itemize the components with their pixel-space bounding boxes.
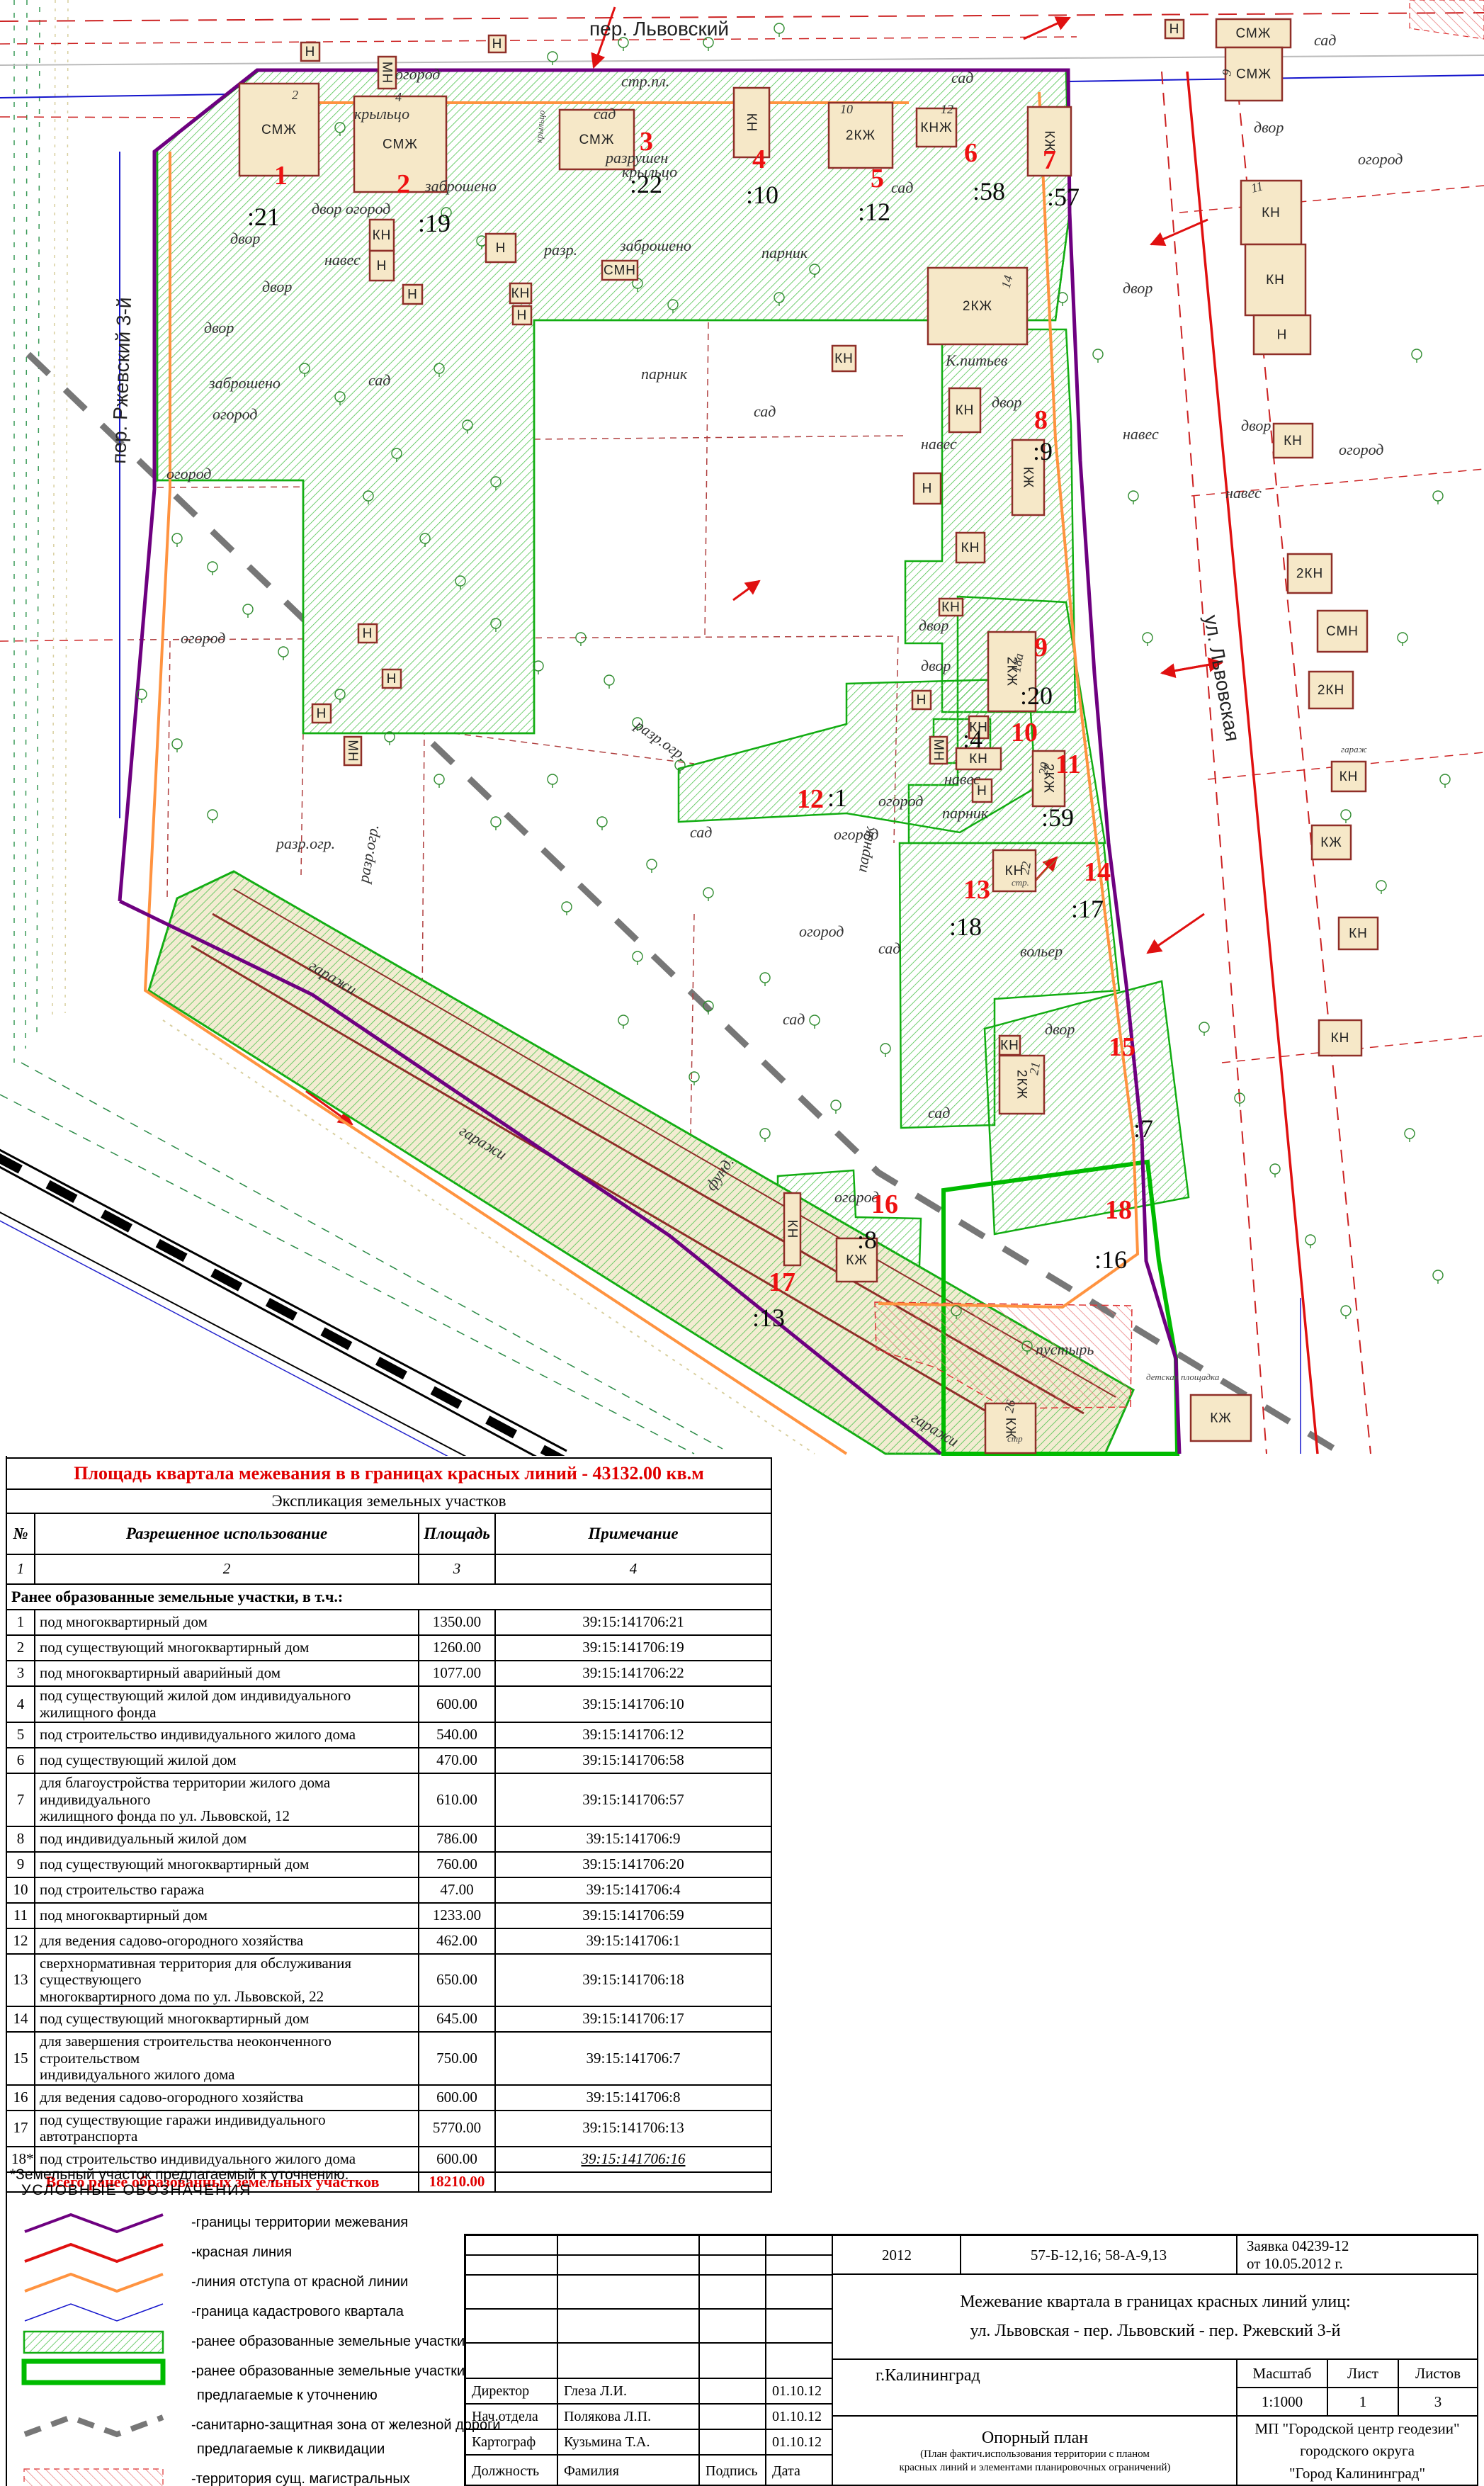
table-row: 1под многоквартирный дом1350.0039:15:141… [6,1610,771,1635]
stamp-empty-cell [557,2343,699,2378]
cell-num: 14 [6,2006,35,2032]
map-label: К.питьев [945,351,1008,369]
colnum-3: 3 [419,1554,495,1584]
cadastral-number: :1 [827,784,847,812]
map-label: двор [921,657,951,674]
map-label: сад [951,69,973,86]
cadastral-number: :12 [858,198,890,226]
building-label: КН [1331,1031,1350,1046]
stamp-empty-cell [465,2309,557,2343]
map-label: разр.огр. [275,835,335,852]
cell-use: для ведения садово-огородного хозяйства [35,1928,419,1954]
parcel-number: 10 [1011,718,1038,747]
legend: УСЛОВНЫЕ ОБОЗНАЧЕНИЯ -границы территории… [21,2182,460,2486]
stamp-title: Межевание квартала в границах красных ли… [832,2273,1478,2360]
colnum-4: 4 [495,1554,771,1584]
cell-num: 5 [6,1722,35,1748]
map-label: 21 [1026,1061,1043,1075]
table-row: 3под многоквартирный аварийный дом1077.0… [6,1661,771,1686]
cell-area: 650.00 [419,1954,495,2007]
cell-num: 9 [6,1852,35,1877]
legend-title: УСЛОВНЫЕ ОБОЗНАЧЕНИЯ [21,2182,460,2199]
sheets-label: Листов [1398,2358,1478,2388]
legend-item: -красная линия [21,2239,460,2267]
stamp-signatory-cell [699,2378,766,2404]
doc-type: Опорный план [982,2429,1088,2448]
building-label: МН [931,739,946,762]
stamp-empty-cell [766,2255,832,2275]
table-row: 17под существующие гаражи индивидуальног… [6,2111,771,2147]
parcel-number: 2 [397,169,410,199]
stamp-empty-cell [699,2343,766,2378]
map-label: сад [891,179,913,196]
stamp-signatory-cell: Должность [465,2455,557,2486]
stamp-empty-cell [699,2255,766,2275]
map-label: 2 [292,88,298,102]
cell-use: под существующий жилой дом [35,1748,419,1773]
map-label: 26 [1002,1399,1018,1413]
building-label: Н [407,288,418,303]
cell-area: 540.00 [419,1722,495,1748]
stamp-signatory-cell: Подпись [699,2455,766,2486]
building-label: КН [511,286,531,301]
building-label: СМЖ [383,137,418,152]
map-label: парник [942,804,989,822]
cell-use: под строительство индивидуального жилого… [35,1722,419,1748]
hatch-red-swatch [21,2465,170,2486]
stamp-signatory-cell [699,2404,766,2429]
table-footnote: *Земельный участок предлагаемый к уточне… [10,2166,349,2183]
cell-use: для благоустройства территории жилого до… [35,1773,419,1826]
legend-item-label: -ранее образованные земельные участки [191,2334,465,2350]
legend-item: -граница кадастрового квартала [21,2298,460,2327]
building-label: КН [1284,434,1303,448]
cadastral-number: :21 [247,203,280,231]
map-label: сад [1314,31,1336,49]
stamp-empty-cell [465,2343,557,2378]
sheet-label: Лист [1327,2358,1399,2388]
hatch-green-swatch [21,2328,170,2356]
cadastral-number: :59 [1041,803,1074,832]
cell-note: 39:15:141706:20 [495,1852,771,1877]
zigzag-swatch [21,2209,170,2237]
parcel-number: 17 [769,1267,795,1297]
map-label: навес [1225,484,1262,502]
org-line2: городского округа [1300,2440,1415,2463]
cell-note: 39:15:141706:4 [495,1877,771,1903]
map-label: сад [754,402,776,420]
col-header-area: Площадь [419,1513,495,1554]
stamp-signatory-cell: Кузьмина Т.А. [557,2429,699,2455]
cell-note: 39:15:141706:9 [495,1826,771,1852]
cell-note: 39:15:141706:18 [495,1954,771,2007]
cadastral-number: :58 [973,177,1005,205]
map-label: навес [944,770,980,788]
map-label: сад [594,105,616,123]
stamp-signatory-cell: Глеза Л.И. [557,2378,699,2404]
cadastral-number: :13 [752,1304,785,1332]
stamp-title-line2: ул. Львовская - пер. Львовский - пер. Рж… [970,2317,1341,2346]
map-label: сад [690,823,712,841]
cell-num: 12 [6,1928,35,1954]
building-label: Н [1277,328,1288,343]
street-label-top: пер. Львовский [589,18,729,40]
table-row: 9под существующий многоквартирный дом760… [6,1852,771,1877]
cell-num: 13 [6,1954,35,2007]
building-label: 2КЖ [846,128,876,143]
building-label: 2КН [1296,567,1323,582]
building-label: СМН [1326,624,1359,639]
map-label: огород [799,922,844,940]
building-label: КН [1266,273,1285,288]
cell-use: для ведения садово-огородного хозяйства [35,2085,419,2111]
map-label: сад [928,1104,950,1121]
stamp-request: Заявка 04239-12 от 10.05.2012 г. [1236,2235,1478,2275]
col-header-num: № [6,1513,35,1554]
map-label: 10 [840,102,853,116]
map-label: сад [783,1010,805,1028]
parcel-number: 6 [964,138,978,168]
building-label: МН [380,62,395,84]
cadastral-number: :20 [1020,682,1053,710]
legend-item: -санитарно-защитная зона от железной дор… [21,2412,460,2440]
table-row: 5под строительство индивидуального жилог… [6,1722,771,1748]
stamp-signatory-cell: Фамилия [557,2455,699,2486]
stamp-signatory-cell: 01.10.12 [766,2429,832,2455]
stamp-empty-cell [465,2235,557,2255]
legend-item: -ранее образованные земельные участки [21,2358,460,2386]
cell-area: 5770.00 [419,2111,495,2147]
colnum-1: 1 [6,1554,35,1584]
map-label: сад [368,371,390,389]
stamp-empty-cell [699,2235,766,2255]
stamp-empty-cell [557,2309,699,2343]
map-label: разрушен [604,149,668,166]
stamp-sheet-code: 57-Б-12,16; 58-А-9,13 [960,2235,1237,2275]
table-row: 15для завершения строительства неокончен… [6,2032,771,2085]
building-label: КЖ [1210,1411,1232,1426]
organization-cell: МП "Городской центр геодезии" городского… [1236,2415,1478,2486]
building-label: КН [744,113,759,132]
map-label: огород [878,792,923,810]
table-title: Площадь квартала межевания в в границах … [6,1458,771,1489]
building-label: КЖ [1021,467,1036,489]
table-row: 11под многоквартирный дом1233.0039:15:14… [6,1903,771,1928]
stamp-signatory-cell: Нач.отдела [465,2404,557,2429]
cell-use: под существующие гаражи индивидуального … [35,2111,419,2147]
cell-note: 39:15:141706:10 [495,1686,771,1722]
stamp-empty-cell [465,2275,557,2309]
table-row: 12для ведения садово-огородного хозяйств… [6,1928,771,1954]
building-label: КН [1000,1039,1019,1053]
cell-area: 600.00 [419,2147,495,2172]
map-label: навес [1123,425,1159,443]
building-label: КН [1339,769,1359,784]
survey-map: СМЖСМЖСМЖКН2КЖКНЖКЖМННННКНННКНННСМН2КЖКН… [0,0,1484,1456]
cell-note: 39:15:141706:59 [495,1903,771,1928]
cadastral-number: :16 [1094,1245,1127,1274]
doc-desc2: красных линий и элементами планировочных… [899,2461,1170,2475]
stamp-empty-cell [699,2309,766,2343]
table-header-row: № Разрешенное использование Площадь Прим… [6,1513,771,1554]
building-label: СМЖ [579,132,615,147]
building-label: КЖ [1320,835,1342,850]
map-label: огород [213,405,257,423]
map-label: двор [1045,1020,1075,1038]
stamp-empty-cell [699,2275,766,2309]
table-row: 13сверхнормативная территория для обслуж… [6,1954,771,2007]
parcel-number: 13 [963,875,990,905]
stamp-empty-cell [557,2235,699,2255]
section-header: Ранее образованные земельные участки, в … [6,1584,771,1610]
cell-use: под индивидуальный жилой дом [35,1826,419,1852]
zigzag-swatch [21,2269,170,2297]
cell-note: 39:15:141706:7 [495,2032,771,2085]
building-label: 2КН [1318,683,1344,698]
cell-num: 10 [6,1877,35,1903]
parcel-number: 14 [1084,857,1111,887]
cell-num: 7 [6,1773,35,1826]
table-row: 2под существующий многоквартирный дом126… [6,1635,771,1661]
stamp-empty-cell [557,2275,699,2309]
cell-area: 47.00 [419,1877,495,1903]
cell-area: 610.00 [419,1773,495,1826]
parcel-number: 11 [1055,750,1081,779]
cell-use: сверхнормативная территория для обслужив… [35,1954,419,2007]
map-label: парник [641,365,688,383]
request-date: от 10.05.2012 г. [1247,2255,1343,2273]
legend-item: -ранее образованные земельные участки [21,2328,460,2356]
map-label: 22 [1017,860,1033,875]
request-number: Заявка 04239-12 [1247,2237,1349,2255]
parcel-number: 15 [1109,1032,1135,1062]
exploitation-table: Площадь квартала межевания в в границах … [6,1457,772,2193]
cell-area: 1260.00 [419,1635,495,1661]
dash-gray-swatch [21,2412,170,2440]
map-label: заброшено [424,177,497,195]
cell-use: под многоквартирный дом [35,1610,419,1635]
building-label: КН [961,541,980,555]
cadastral-number: :22 [630,170,662,198]
legend-item: -границы территории межевания [21,2209,460,2237]
building-label: СМЖ [261,123,297,137]
table-row: 10под строительство гаража47.0039:15:141… [6,1877,771,1903]
stamp-signatory-cell: Директор [465,2378,557,2404]
stamp-empty-cell [465,2255,557,2275]
cell-area: 600.00 [419,1686,495,1722]
cell-num: 15 [6,2032,35,2085]
cell-note: 39:15:141706:22 [495,1661,771,1686]
cell-note: 39:15:141706:57 [495,1773,771,1826]
map-label: детская площадка [1146,1372,1220,1382]
building-label: КН [969,752,988,767]
stamp-signatory-cell: Дата [766,2455,832,2486]
total-note-empty [495,2172,771,2193]
column-number-row: 1 2 3 4 [6,1554,771,1584]
cell-note: 39:15:141706:16 [495,2147,771,2172]
stamp-empty-cell [766,2343,832,2378]
colnum-2: 2 [35,1554,419,1584]
col-header-use: Разрешенное использование [35,1513,419,1554]
cell-use: под многоквартирный дом [35,1903,419,1928]
cell-num: 3 [6,1661,35,1686]
building-label: Н [492,37,503,52]
map-label: двор [992,393,1021,411]
sheet-value: 1 [1327,2387,1399,2417]
cell-note: 39:15:141706:1 [495,1928,771,1954]
legend-item-label2: предлагаемые к ликвидации [197,2441,385,2458]
building-label: КН [1262,205,1281,220]
map-label: сад [878,939,900,957]
building-label: СМЖ [1236,67,1271,82]
cell-use: под существующий многоквартирный дом [35,2006,419,2032]
map-label: заброшено [619,237,691,254]
legend-item-label2: предлагаемые к уточнению [197,2388,378,2404]
cell-area: 462.00 [419,1928,495,1954]
building-label: КН [834,351,854,366]
cell-note: 39:15:141706:12 [495,1722,771,1748]
cell-use: под существующий жилой дом индивидуально… [35,1686,419,1722]
survey-map-svg: СМЖСМЖСМЖКН2КЖКНЖКЖМННННКНННКНННСМН2КЖКН… [0,0,1484,1456]
cadastral-number: :10 [746,181,778,209]
map-label: двор [1241,417,1271,434]
cell-area: 760.00 [419,1852,495,1877]
scale-label: Масштаб [1236,2358,1328,2388]
map-label: стр. [1012,877,1029,888]
parcel-number: 3 [640,127,653,157]
map-label: двор [1123,279,1152,297]
cell-note: 39:15:141706:13 [495,2111,771,2147]
map-label: гараж [1341,744,1367,755]
cell-use: под многоквартирный аварийный дом [35,1661,419,1686]
scale-value: 1:1000 [1236,2387,1328,2417]
legend-item: -территория сущ. магистральных [21,2465,460,2486]
stamp-empty-cell [557,2255,699,2275]
stamp-empty-cell [766,2275,832,2309]
zigzag-swatch [21,2239,170,2267]
building-label: СМН [604,264,636,278]
doc-desc1: (План фактич.использования территории с … [920,2448,1150,2461]
stamp-year: 2012 [832,2235,961,2275]
building-label: КН [956,403,975,418]
parcel-number: 18 [1105,1195,1132,1225]
building-label: КН [1349,927,1368,942]
cell-note: 39:15:141706:17 [495,2006,771,2032]
building-label: МН [345,740,360,762]
cadastral-number: :8 [857,1226,877,1254]
building-label: Н [387,672,397,687]
building-label: Н [317,706,327,721]
legend-item-label: -красная линия [191,2244,292,2261]
org-line3: "Город Калининград" [1289,2463,1425,2485]
title-block: 2012 57-Б-12,16; 58-А-9,13 Заявка 04239-… [464,2234,1478,2486]
cell-area: 1233.00 [419,1903,495,1928]
building-label: КНЖ [920,120,952,135]
cadastral-number: :7 [1133,1114,1153,1143]
table-row: 8под индивидуальный жилой дом786.0039:15… [6,1826,771,1852]
map-label: стр [1007,1433,1023,1444]
col-header-note: Примечание [495,1513,771,1554]
map-label: заброшено [208,374,281,392]
table-row: 16для ведения садово-огородного хозяйств… [6,2085,771,2111]
building-label: Н [922,482,933,497]
cell-note: 39:15:141706:8 [495,2085,771,2111]
doc-type-cell: Опорный план (План фактич.использования … [832,2415,1237,2486]
map-label: парник [761,244,808,261]
zigzag-thin-swatch [21,2298,170,2327]
building-label: Н [1169,22,1180,37]
cell-use: под строительство гаража [35,1877,419,1903]
building-label: Н [496,241,506,256]
stamp-title-line1: Межевание квартала в границах красных ли… [960,2288,1350,2317]
cell-num: 17 [6,2111,35,2147]
parcel-number: 1 [274,161,288,191]
building-label: 2КЖ [963,299,992,314]
building-label: КН [373,228,392,243]
building-label: СМЖ [1236,26,1271,41]
table-row: 7для благоустройства территории жилого д… [6,1773,771,1826]
map-label: стр.пл. [621,72,669,90]
cell-note: 39:15:141706:58 [495,1748,771,1773]
map-label: навес [324,251,361,269]
building-label: Н [363,626,373,641]
legend-item-label: -линия отступа от красной линии [191,2274,408,2290]
map-label: пустырь [1036,1340,1094,1358]
map-label: разр. [543,241,577,259]
stamp-signatory-cell [699,2429,766,2455]
cell-note: 39:15:141706:21 [495,1610,771,1635]
rect-green-swatch [21,2358,170,2386]
table-row: 4под существующий жилой дом индивидуальн… [6,1686,771,1722]
cell-num: 6 [6,1748,35,1773]
stamp-signatory-cell: 01.10.12 [766,2404,832,2429]
map-label: 12 [941,102,953,116]
parcel-number: 7 [1043,145,1056,175]
legend-item-label: -граница кадастрового квартала [191,2304,404,2320]
stamp-empty-cell [766,2309,832,2343]
legend-item-label: -санитарно-защитная зона от железной дор… [191,2417,501,2434]
map-label: 20 [1036,761,1052,776]
parcel-number: 9 [1034,633,1048,662]
table-row: 14под существующий многоквартирный дом64… [6,2006,771,2032]
cadastral-number: :17 [1071,895,1104,923]
map-label: двор [1254,118,1284,136]
legend-item-label: -территория сущ. магистральных [191,2471,410,2486]
cell-area: 470.00 [419,1748,495,1773]
cell-use: для завершения строительства неоконченно… [35,2032,419,2085]
legend-item-label: -ранее образованные земельные участки [191,2363,465,2380]
cell-note: 39:15:141706:19 [495,1635,771,1661]
parcel-number: 5 [871,164,884,193]
org-line1: МП "Городской центр геодезии" [1254,2418,1459,2441]
map-label: огород [1358,150,1403,168]
parcel-number: 8 [1034,405,1048,435]
table-subtitle: Экспликация земельных участков [6,1489,771,1513]
stamp-signatory-cell: Картограф [465,2429,557,2455]
map-label: огород [181,629,225,647]
map-label: двор огород [312,200,390,217]
building-label: КЖ [846,1253,868,1268]
cell-num: 16 [6,2085,35,2111]
map-label: двор [919,616,948,634]
cell-use: под существующий многоквартирный дом [35,1852,419,1877]
cadastral-number: :9 [1033,437,1053,465]
cell-num: 4 [6,1686,35,1722]
building-label: КН [941,600,961,615]
cadastral-plan-page: СМЖСМЖСМЖКН2КЖКНЖКЖМННННКНННКНННСМН2КЖКН… [0,0,1484,2486]
map-label: огород [1339,441,1383,458]
map-label: 4 [395,90,402,104]
